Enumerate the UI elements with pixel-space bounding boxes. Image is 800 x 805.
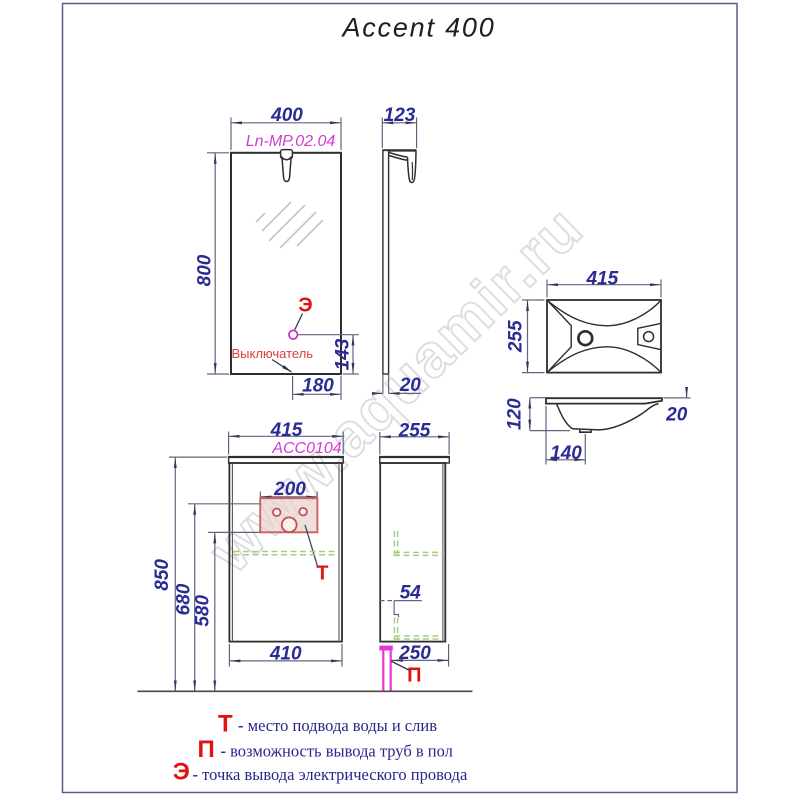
svg-text:140: 140 <box>550 443 582 464</box>
svg-text:- точка вывода электрического: - точка вывода электрического провода <box>193 765 468 784</box>
svg-text:Э: Э <box>173 759 190 786</box>
svg-text:680: 680 <box>174 583 195 615</box>
svg-text:800: 800 <box>195 254 216 286</box>
svg-text:400: 400 <box>270 105 303 126</box>
svg-text:580: 580 <box>193 595 214 627</box>
svg-text:255: 255 <box>506 320 527 353</box>
svg-text:П: П <box>407 665 421 687</box>
svg-text:410: 410 <box>269 644 302 665</box>
svg-text:Выключатель: Выключатель <box>232 346 314 361</box>
svg-text:П: П <box>198 736 215 763</box>
svg-text:20: 20 <box>665 404 688 425</box>
svg-text:- место подвода воды и слив: - место подвода воды и слив <box>238 716 437 735</box>
svg-text:255: 255 <box>398 420 431 441</box>
svg-text:Т: Т <box>316 563 328 585</box>
svg-text:850: 850 <box>152 559 173 591</box>
svg-text:54: 54 <box>400 582 422 603</box>
svg-text:Э: Э <box>298 295 312 317</box>
svg-text:123: 123 <box>384 105 416 126</box>
svg-text:143: 143 <box>333 338 354 370</box>
svg-text:250: 250 <box>398 643 431 664</box>
svg-text:Accent 400: Accent 400 <box>340 13 495 43</box>
svg-text:20: 20 <box>399 375 422 396</box>
svg-text:200: 200 <box>273 479 306 500</box>
svg-text:- возможность вывода труб в по: - возможность вывода труб в пол <box>221 741 453 760</box>
svg-text:120: 120 <box>505 398 526 430</box>
svg-text:Ln-MP.02.04: Ln-MP.02.04 <box>246 133 336 150</box>
svg-text:415: 415 <box>585 268 618 289</box>
svg-text:415: 415 <box>270 420 303 441</box>
svg-text:ACC0104: ACC0104 <box>271 440 341 457</box>
svg-text:Т: Т <box>218 711 233 738</box>
svg-text:180: 180 <box>302 375 334 396</box>
